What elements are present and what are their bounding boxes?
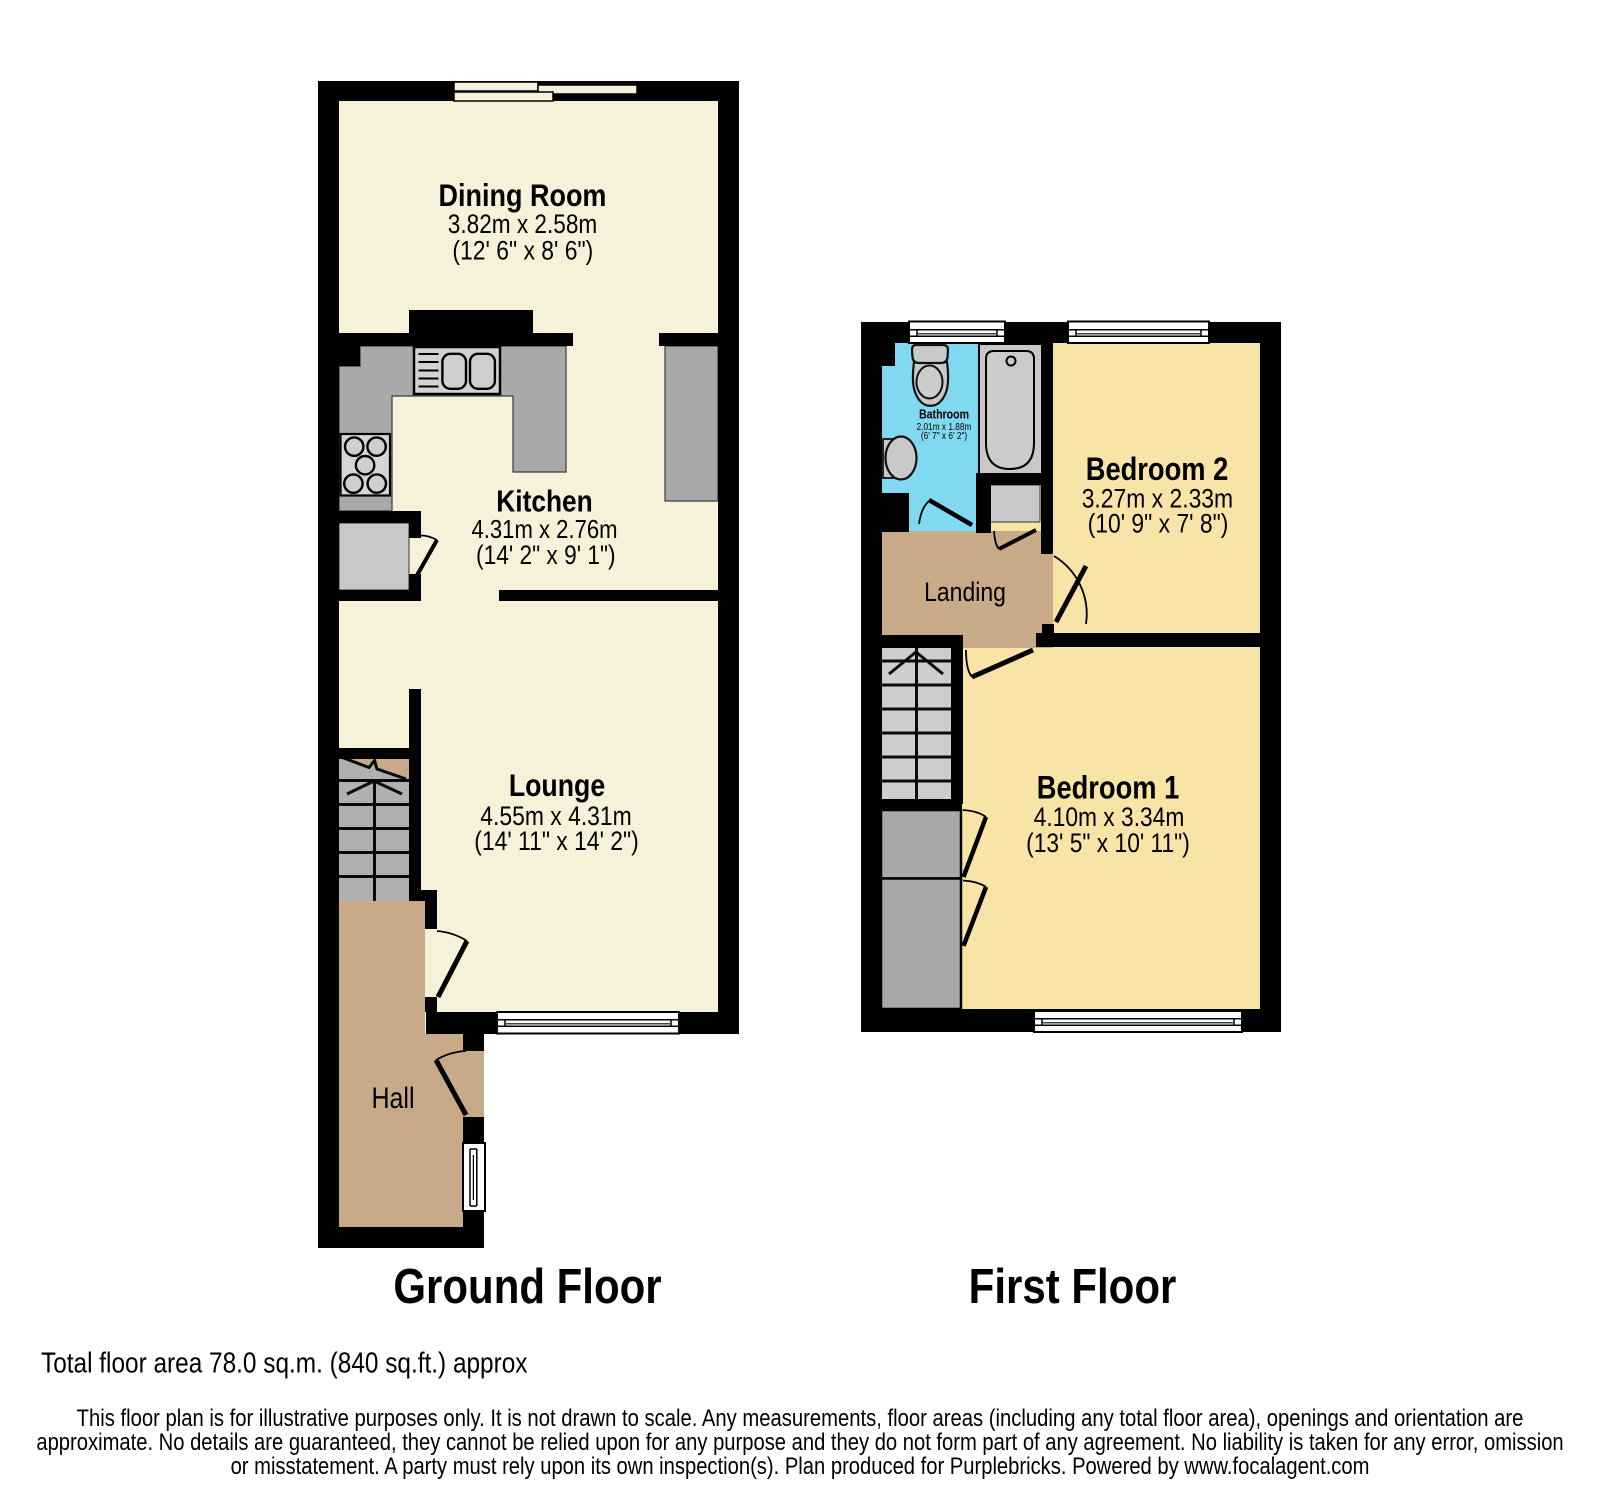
svg-text:Bedroom 1: Bedroom 1 (1037, 770, 1180, 806)
svg-text:4.31m x 2.76m: 4.31m x 2.76m (471, 515, 617, 544)
svg-text:Landing: Landing (924, 577, 1006, 607)
svg-text:Lounge: Lounge (509, 769, 605, 803)
svg-text:(6' 7" x 6' 2"): (6' 7" x 6' 2") (921, 430, 967, 441)
svg-text:approximate. No details are gu: approximate. No details are guaranteed, … (36, 1428, 1563, 1455)
svg-text:or misstatement. A party must: or misstatement. A party must rely upon … (231, 1452, 1370, 1479)
svg-text:First Floor: First Floor (969, 1258, 1177, 1314)
svg-text:Total floor area 78.0 sq.m. (8: Total floor area 78.0 sq.m. (840 sq.ft.)… (41, 1347, 528, 1379)
svg-text:(14' 11" x 14' 2"): (14' 11" x 14' 2") (474, 826, 639, 856)
svg-text:(12' 6" x 8' 6"): (12' 6" x 8' 6") (452, 236, 593, 266)
svg-text:Kitchen: Kitchen (496, 485, 592, 519)
svg-text:Dining Room: Dining Room (439, 178, 607, 214)
svg-text:Ground Floor: Ground Floor (393, 1258, 661, 1314)
svg-text:(10' 9" x 7' 8"): (10' 9" x 7' 8") (1088, 509, 1229, 539)
svg-text:Bathroom: Bathroom (919, 409, 969, 422)
svg-text:(14' 2" x 9' 1"): (14' 2" x 9' 1") (476, 541, 616, 570)
svg-text:Hall: Hall (371, 1081, 414, 1114)
svg-text:Bedroom 2: Bedroom 2 (1086, 452, 1229, 488)
svg-text:This floor plan is for illustr: This floor plan is for illustrative purp… (77, 1404, 1524, 1431)
svg-text:(13' 5" x 10' 11"): (13' 5" x 10' 11") (1026, 828, 1190, 858)
